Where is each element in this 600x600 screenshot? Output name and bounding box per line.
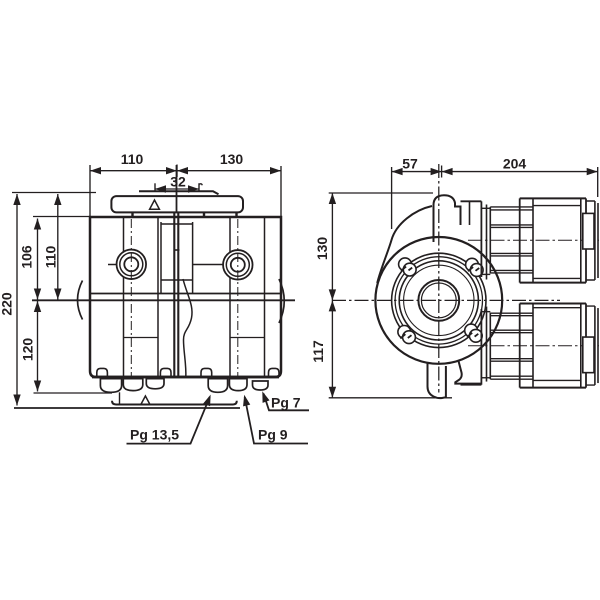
svg-text:32: 32 (170, 174, 186, 190)
svg-text:130: 130 (314, 237, 330, 261)
svg-text:Pg 13,5: Pg 13,5 (130, 427, 179, 443)
svg-text:204: 204 (503, 156, 527, 172)
svg-text:120: 120 (20, 338, 36, 362)
svg-text:Pg 7: Pg 7 (271, 395, 301, 411)
svg-text:106: 106 (19, 245, 35, 269)
svg-text:117: 117 (310, 340, 326, 363)
svg-text:220: 220 (0, 292, 15, 316)
svg-text:Pg 9: Pg 9 (258, 427, 288, 443)
svg-text:110: 110 (121, 151, 144, 167)
svg-text:110: 110 (43, 245, 59, 268)
svg-text:57: 57 (402, 156, 418, 172)
svg-text:130: 130 (220, 151, 244, 167)
